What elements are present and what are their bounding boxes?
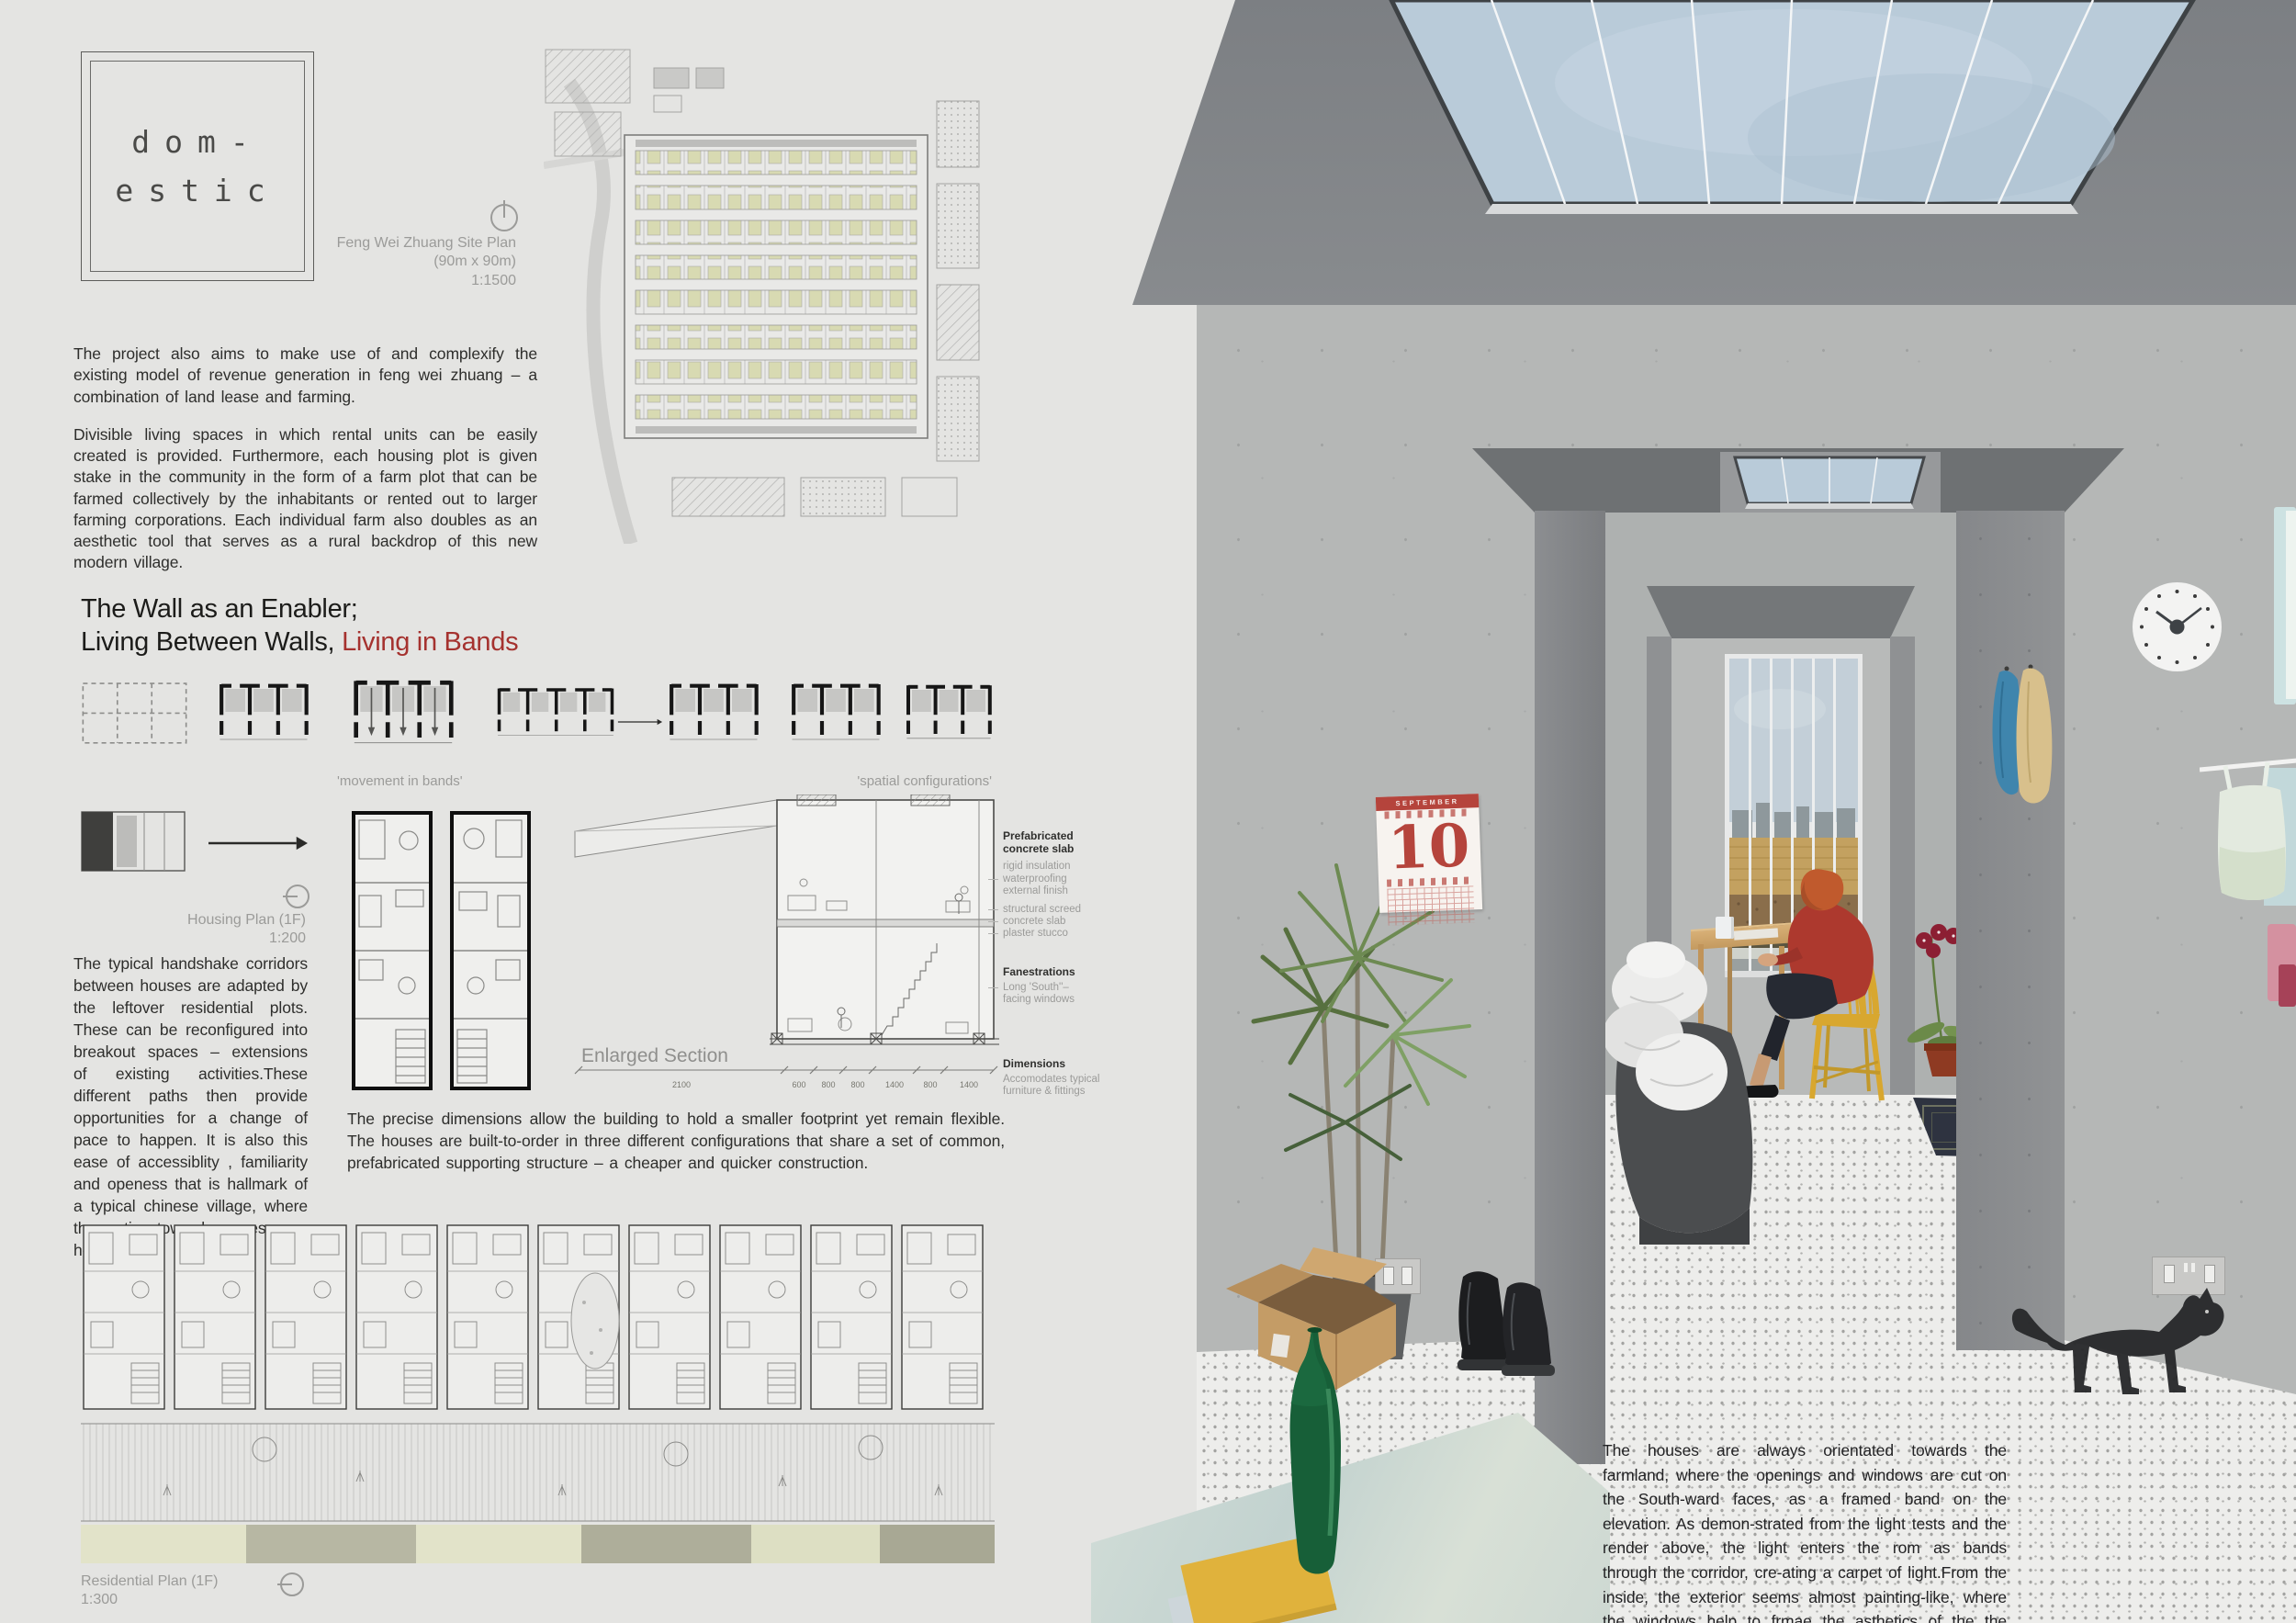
site-plan-caption-line3: 1:1500 (314, 272, 516, 290)
housing-floor-plans (352, 811, 531, 1094)
dim-800b: 800 (850, 1080, 864, 1089)
towel-strip-2 (2286, 511, 2296, 699)
handshake-text: The typical handshake corridors between … (73, 953, 308, 1262)
site-plan-drawing (544, 48, 986, 544)
annotation-structural-screed: structural screed (1003, 904, 1141, 915)
laundry-rail-tanktop (2200, 755, 2296, 911)
annotation-external-finish: external finish (1003, 885, 1141, 896)
annotation-title-prefab-2: concrete slab (1003, 842, 1141, 855)
heading-line1: The Wall as an Enabler; (81, 593, 669, 626)
dim-1400b: 1400 (960, 1080, 978, 1089)
heading-line2-red: Living in Bands (342, 627, 518, 657)
heading-line2: Living Between Walls, Living in Bands (81, 626, 669, 659)
wall-clock (2133, 582, 2222, 671)
logo-box: dom- estic (81, 51, 314, 281)
render-caption: The houses are always orientated towards… (1603, 1438, 2007, 1623)
north-arrow-icon-2 (281, 883, 312, 910)
annotation-furniture-1: Accomodates typical (1003, 1074, 1141, 1085)
intro-text: The project also aims to make use of and… (73, 344, 537, 591)
dim-800c: 800 (923, 1080, 937, 1089)
annotation-south-windows-1: Long 'South''– (1003, 982, 1141, 993)
bed (1603, 932, 1766, 1245)
movement-label: 'movement in bands' (337, 773, 466, 789)
site-plan-caption-line2: (90m x 90m) (314, 253, 516, 271)
portal-jamb-right (1956, 511, 2065, 1350)
housing-plan-scale: 1:200 (122, 930, 306, 948)
interior-render: SEPTEMBER 10 (1132, 0, 2296, 1623)
spatial-label: 'spatial configurations' (825, 773, 992, 789)
corridor-skylight (1731, 456, 1929, 513)
north-arrow-icon-3 (276, 1571, 307, 1598)
annotation-title-fanestrations: Fanestrations (1003, 965, 1141, 978)
presentation-board: dom- estic (0, 0, 2296, 1623)
band-diagram-duo (78, 806, 188, 880)
band-diagram-dashed (78, 676, 190, 754)
band-diagram-wide (496, 673, 615, 750)
annotation-south-windows-2: facing windows (1003, 994, 1141, 1005)
annotation-plaster-stucco: plaster stucco (1003, 928, 1141, 939)
residential-plan-scale: 1:300 (81, 1591, 283, 1609)
wall-calendar: SEPTEMBER 10 (1376, 794, 1482, 913)
annotation-furniture-2: furniture & fittings (1003, 1086, 1141, 1097)
annotation-concrete-slab: concrete slab (1003, 916, 1141, 927)
section-annotations: Prefabricated concrete slab rigid insula… (1003, 829, 1141, 1098)
intro-paragraph-1: The project also aims to make use of and… (73, 344, 537, 408)
trousers (1766, 974, 1838, 1020)
band-diagram-config-3 (905, 673, 993, 750)
precise-text: The precise dimensions allow the buildin… (347, 1108, 1005, 1174)
calendar-day: 10 (1377, 816, 1481, 879)
dim-1400a: 1400 (885, 1080, 904, 1089)
section-heading: The Wall as an Enabler; Living Between W… (81, 593, 669, 659)
red-laundry (2279, 964, 2296, 1007)
calendar-month: SEPTEMBER (1395, 797, 1458, 807)
annotation-title-dimensions: Dimensions (1003, 1057, 1141, 1070)
intro-paragraph-2: Divisible living spaces in which rental … (73, 424, 537, 574)
annotation-waterproofing: waterproofing (1003, 873, 1141, 885)
arrow-right-icon-2 (207, 831, 310, 855)
residential-plan-drawing (81, 1220, 995, 1564)
annotation-title-prefab-1: Prefabricated (1003, 829, 1141, 842)
beige-coat (2017, 669, 2053, 804)
skylight (1371, 0, 2216, 217)
band-diagram-solid-1 (218, 673, 310, 750)
dim-600: 600 (792, 1080, 805, 1089)
logo-line1: dom- (131, 124, 263, 160)
band-diagram-config-1 (668, 673, 760, 750)
hanging-coats (1986, 663, 2060, 812)
dim-800a: 800 (821, 1080, 835, 1089)
north-arrow-icon (487, 198, 522, 233)
logo-line2: estic (115, 173, 279, 209)
housing-plan-title: Housing Plan (1F) (122, 911, 306, 930)
inner-portal-header (1647, 586, 1915, 638)
band-diagram-config-2 (790, 673, 882, 750)
green-glass-vase (1275, 1324, 1357, 1600)
dim-2100: 2100 (672, 1080, 691, 1089)
residential-plan-title: Residential Plan (1F) (81, 1572, 283, 1591)
band-diagram-movement (352, 673, 455, 750)
enlarged-section-label: Enlarged Section (581, 1045, 728, 1067)
site-plan-caption-line1: Feng Wei Zhuang Site Plan (314, 234, 516, 253)
black-cat (2001, 1282, 2231, 1411)
heading-line2-black: Living Between Walls, (81, 627, 342, 657)
boots (1445, 1268, 1569, 1387)
annotation-rigid-insulation: rigid insulation (1003, 861, 1141, 872)
arrow-right-icon (617, 712, 663, 732)
